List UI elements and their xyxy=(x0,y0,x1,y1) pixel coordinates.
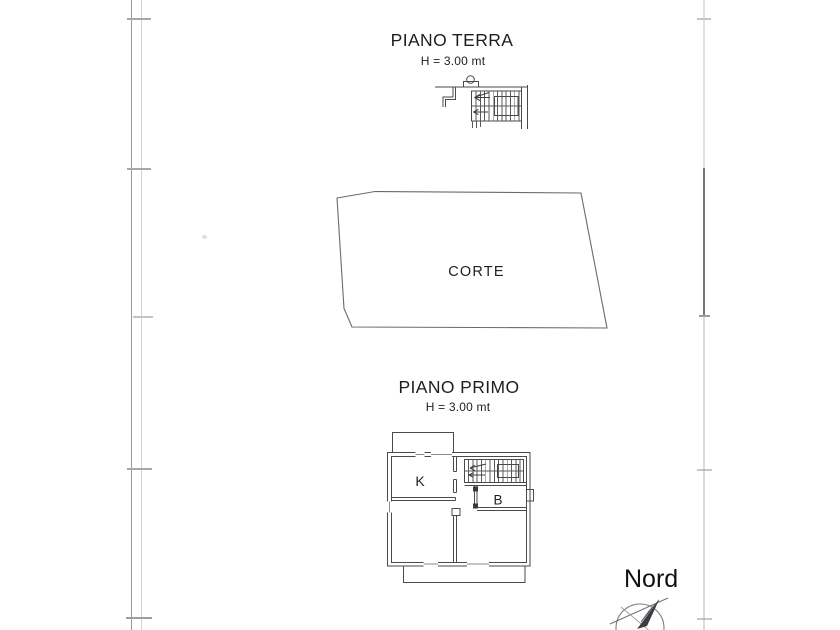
room-label-kitchen: K xyxy=(415,473,425,489)
wall-openings xyxy=(387,452,490,568)
courtyard-outline: CORTE xyxy=(337,192,607,329)
compass-icon xyxy=(610,598,668,630)
flue-circle-icon xyxy=(467,76,475,84)
first-floor-title: PIANO PRIMO xyxy=(398,377,519,398)
plan-sheet-drawing: CORTE xyxy=(0,0,840,630)
ground-floor-plan-drawing xyxy=(435,76,528,129)
first-floor-height-note: H = 3.00 mt xyxy=(426,400,491,414)
left-page-border xyxy=(126,0,153,630)
balcony-outline xyxy=(404,566,526,583)
ground-floor-title: PIANO TERRA xyxy=(391,30,514,51)
plan-sheet: CORTE xyxy=(0,0,840,630)
scan-speck xyxy=(202,235,207,239)
room-label-bath: B xyxy=(493,493,502,508)
north-label: Nord xyxy=(624,565,678,594)
door-jamb xyxy=(473,487,478,492)
stair-treads xyxy=(465,460,524,483)
courtyard-label: CORTE xyxy=(448,264,505,280)
first-floor-plan-drawing: K B xyxy=(387,433,534,583)
right-page-border xyxy=(697,0,712,630)
ground-floor-height-note: H = 3.00 mt xyxy=(421,54,486,68)
door-frame xyxy=(452,509,460,516)
